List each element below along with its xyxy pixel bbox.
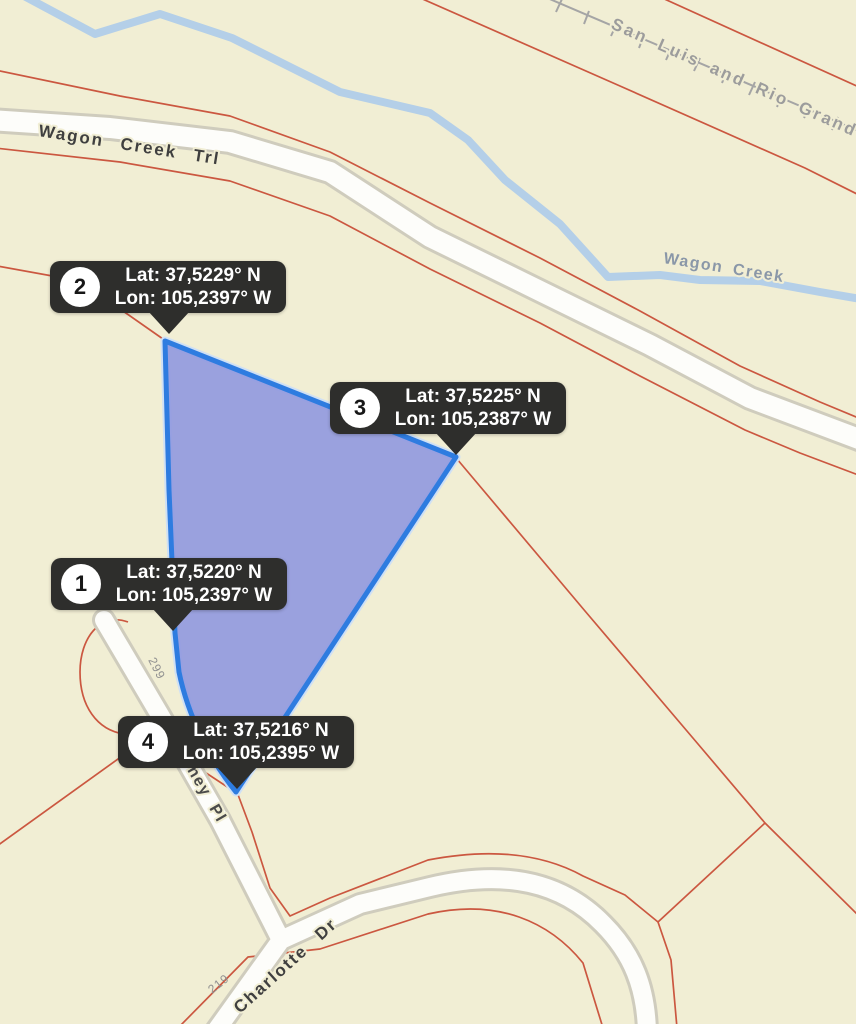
marker-number-badge: 1 xyxy=(61,564,101,604)
marker-number: 4 xyxy=(142,729,154,755)
marker-tooltip-1[interactable]: 1 Lat: 37,5220° N Lon: 105,2397° W xyxy=(51,558,287,610)
marker-latitude: Lat: 37,5216° N xyxy=(178,719,344,742)
marker-number: 1 xyxy=(75,571,87,597)
marker-coordinates: Lat: 37,5220° N Lon: 105,2397° W xyxy=(111,561,277,607)
tooltip-pointer xyxy=(435,432,477,455)
tooltip-pointer xyxy=(152,608,194,631)
marker-number-badge: 4 xyxy=(128,722,168,762)
marker-tooltip-2[interactable]: 2 Lat: 37,5229° N Lon: 105,2397° W xyxy=(50,261,286,313)
marker-coordinates: Lat: 37,5229° N Lon: 105,2397° W xyxy=(110,264,276,310)
map-canvas[interactable]: Wagon Creek Trl San Luis and Rio Grande … xyxy=(0,0,856,1024)
marker-coordinates: Lat: 37,5225° N Lon: 105,2387° W xyxy=(390,385,556,431)
marker-number: 2 xyxy=(74,274,86,300)
marker-tooltip-4[interactable]: 4 Lat: 37,5216° N Lon: 105,2395° W xyxy=(118,716,354,768)
marker-longitude: Lon: 105,2397° W xyxy=(110,287,276,310)
marker-longitude: Lon: 105,2397° W xyxy=(111,584,277,607)
marker-number-badge: 3 xyxy=(340,388,380,428)
map-view: Wagon Creek Trl San Luis and Rio Grande … xyxy=(0,0,856,1024)
marker-number: 3 xyxy=(354,395,366,421)
marker-number-badge: 2 xyxy=(60,267,100,307)
marker-longitude: Lon: 105,2387° W xyxy=(390,408,556,431)
marker-latitude: Lat: 37,5229° N xyxy=(110,264,276,287)
marker-longitude: Lon: 105,2395° W xyxy=(178,742,344,765)
marker-coordinates: Lat: 37,5216° N Lon: 105,2395° W xyxy=(178,719,344,765)
marker-tooltip-3[interactable]: 3 Lat: 37,5225° N Lon: 105,2387° W xyxy=(330,382,566,434)
marker-latitude: Lat: 37,5220° N xyxy=(111,561,277,584)
marker-latitude: Lat: 37,5225° N xyxy=(390,385,556,408)
tooltip-pointer xyxy=(148,311,190,334)
tooltip-pointer xyxy=(216,766,258,789)
